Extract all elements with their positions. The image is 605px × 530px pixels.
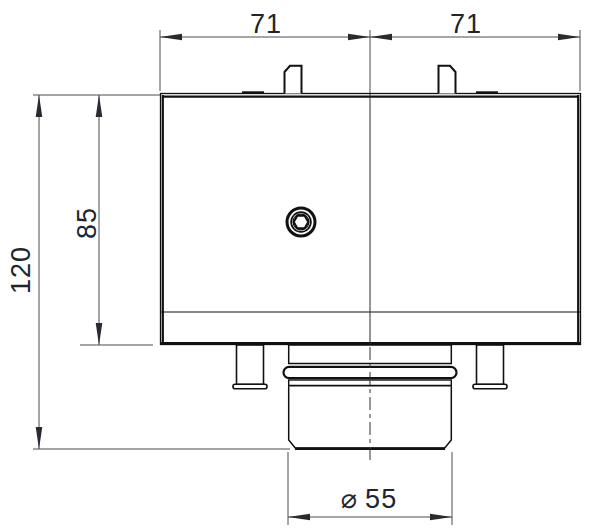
diameter-value: 55 (365, 484, 397, 514)
diameter-symbol-icon: ⌀ (341, 483, 358, 514)
dimension-text-top-right: 71 (450, 11, 482, 38)
clamp-tab-left (285, 66, 302, 94)
arrow-left-icon (288, 514, 310, 521)
mounting-leg-right (473, 345, 507, 389)
arrow-right-icon (558, 34, 580, 41)
dimension-text-diameter: ⌀55 (341, 485, 397, 513)
mounting-leg-left (233, 345, 267, 389)
arrow-down-icon (36, 427, 43, 449)
arrow-left-icon (370, 34, 392, 41)
technical-drawing-canvas: 71 71 120 85 ⌀55 (0, 0, 605, 530)
dimension-text-overall-height: 120 (8, 246, 35, 294)
arrow-down-icon (96, 323, 103, 345)
dimension-text-body-height: 85 (74, 207, 101, 239)
arrow-up-icon (36, 95, 43, 117)
arrow-left-icon (160, 34, 182, 41)
arrow-right-icon (430, 514, 452, 521)
arrow-right-icon (348, 34, 370, 41)
drawing-geometry (0, 0, 605, 530)
arrow-up-icon (96, 95, 103, 117)
dimension-text-top-left: 71 (250, 11, 282, 38)
clamp-tab-right (439, 66, 456, 94)
